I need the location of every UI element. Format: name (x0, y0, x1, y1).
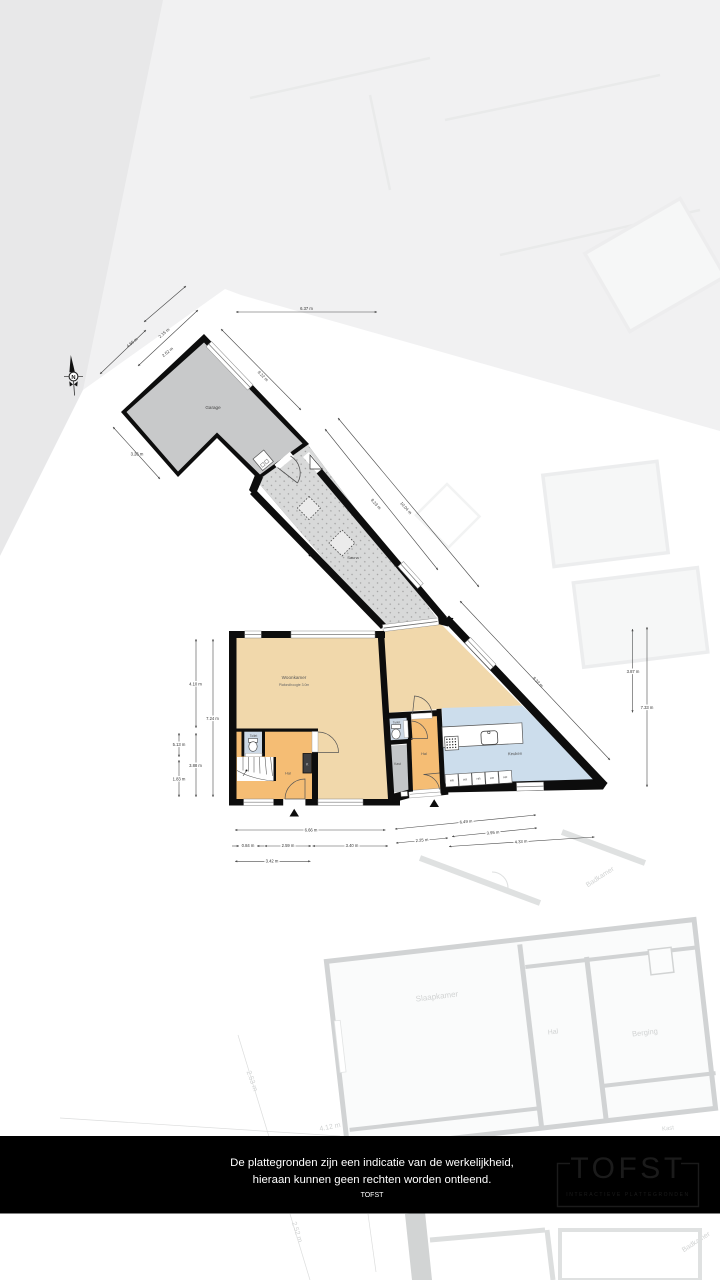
svg-text:HR: HR (503, 775, 507, 779)
svg-text:Sauna: Sauna (347, 555, 359, 560)
svg-text:5.13 m: 5.13 m (173, 742, 186, 747)
svg-text:Plafondhoogte 3.0m: Plafondhoogte 3.0m (279, 683, 310, 687)
svg-text:2.59 m: 2.59 m (282, 843, 295, 848)
svg-text:3.88 m: 3.88 m (189, 763, 202, 768)
svg-text:Kast: Kast (394, 762, 401, 766)
svg-text:HR: HR (490, 776, 494, 780)
svg-text:Toilet: Toilet (393, 720, 401, 724)
svg-text:4.33 m: 4.33 m (514, 839, 528, 845)
svg-text:Woonkamer: Woonkamer (282, 675, 307, 680)
svg-text:INTERACTIEVE PLATTEGRONDEN: INTERACTIEVE PLATTEGRONDEN (566, 1192, 689, 1198)
svg-text:4.10 m: 4.10 m (189, 682, 202, 687)
svg-text:6.37 m: 6.37 m (300, 306, 313, 311)
svg-text:7.24 m: 7.24 m (206, 716, 219, 721)
svg-text:Keuken: Keuken (508, 751, 523, 757)
svg-text:3.40 m: 3.40 m (346, 843, 359, 848)
svg-text:hieraan kunnen geen rechten wo: hieraan kunnen geen rechten worden ontle… (253, 1174, 492, 1186)
svg-text:7.33 m: 7.33 m (641, 705, 654, 710)
svg-text:HR: HR (476, 777, 480, 781)
svg-text:1.83 m: 1.83 m (173, 777, 186, 782)
svg-text:Hal: Hal (547, 1028, 559, 1036)
svg-text:N: N (71, 375, 75, 381)
svg-text:3.87 m: 3.87 m (627, 669, 640, 674)
svg-text:0.84 m: 0.84 m (242, 843, 255, 848)
svg-text:Garage: Garage (205, 405, 221, 410)
svg-text:Toilet: Toilet (250, 734, 258, 738)
svg-text:6.66 m: 6.66 m (305, 827, 318, 832)
svg-text:De plattegronden zijn een indi: De plattegronden zijn een indicatie van … (230, 1157, 514, 1169)
svg-text:Hal: Hal (285, 772, 291, 776)
svg-text:TOFST: TOFST (361, 1192, 385, 1199)
svg-text:Hal: Hal (421, 752, 427, 756)
svg-text:HR: HR (450, 778, 454, 782)
svg-text:3.26 m: 3.26 m (131, 452, 144, 457)
svg-text:TOFST: TOFST (570, 1152, 685, 1185)
svg-text:HR: HR (463, 778, 467, 782)
svg-text:3.42 m: 3.42 m (266, 859, 279, 864)
